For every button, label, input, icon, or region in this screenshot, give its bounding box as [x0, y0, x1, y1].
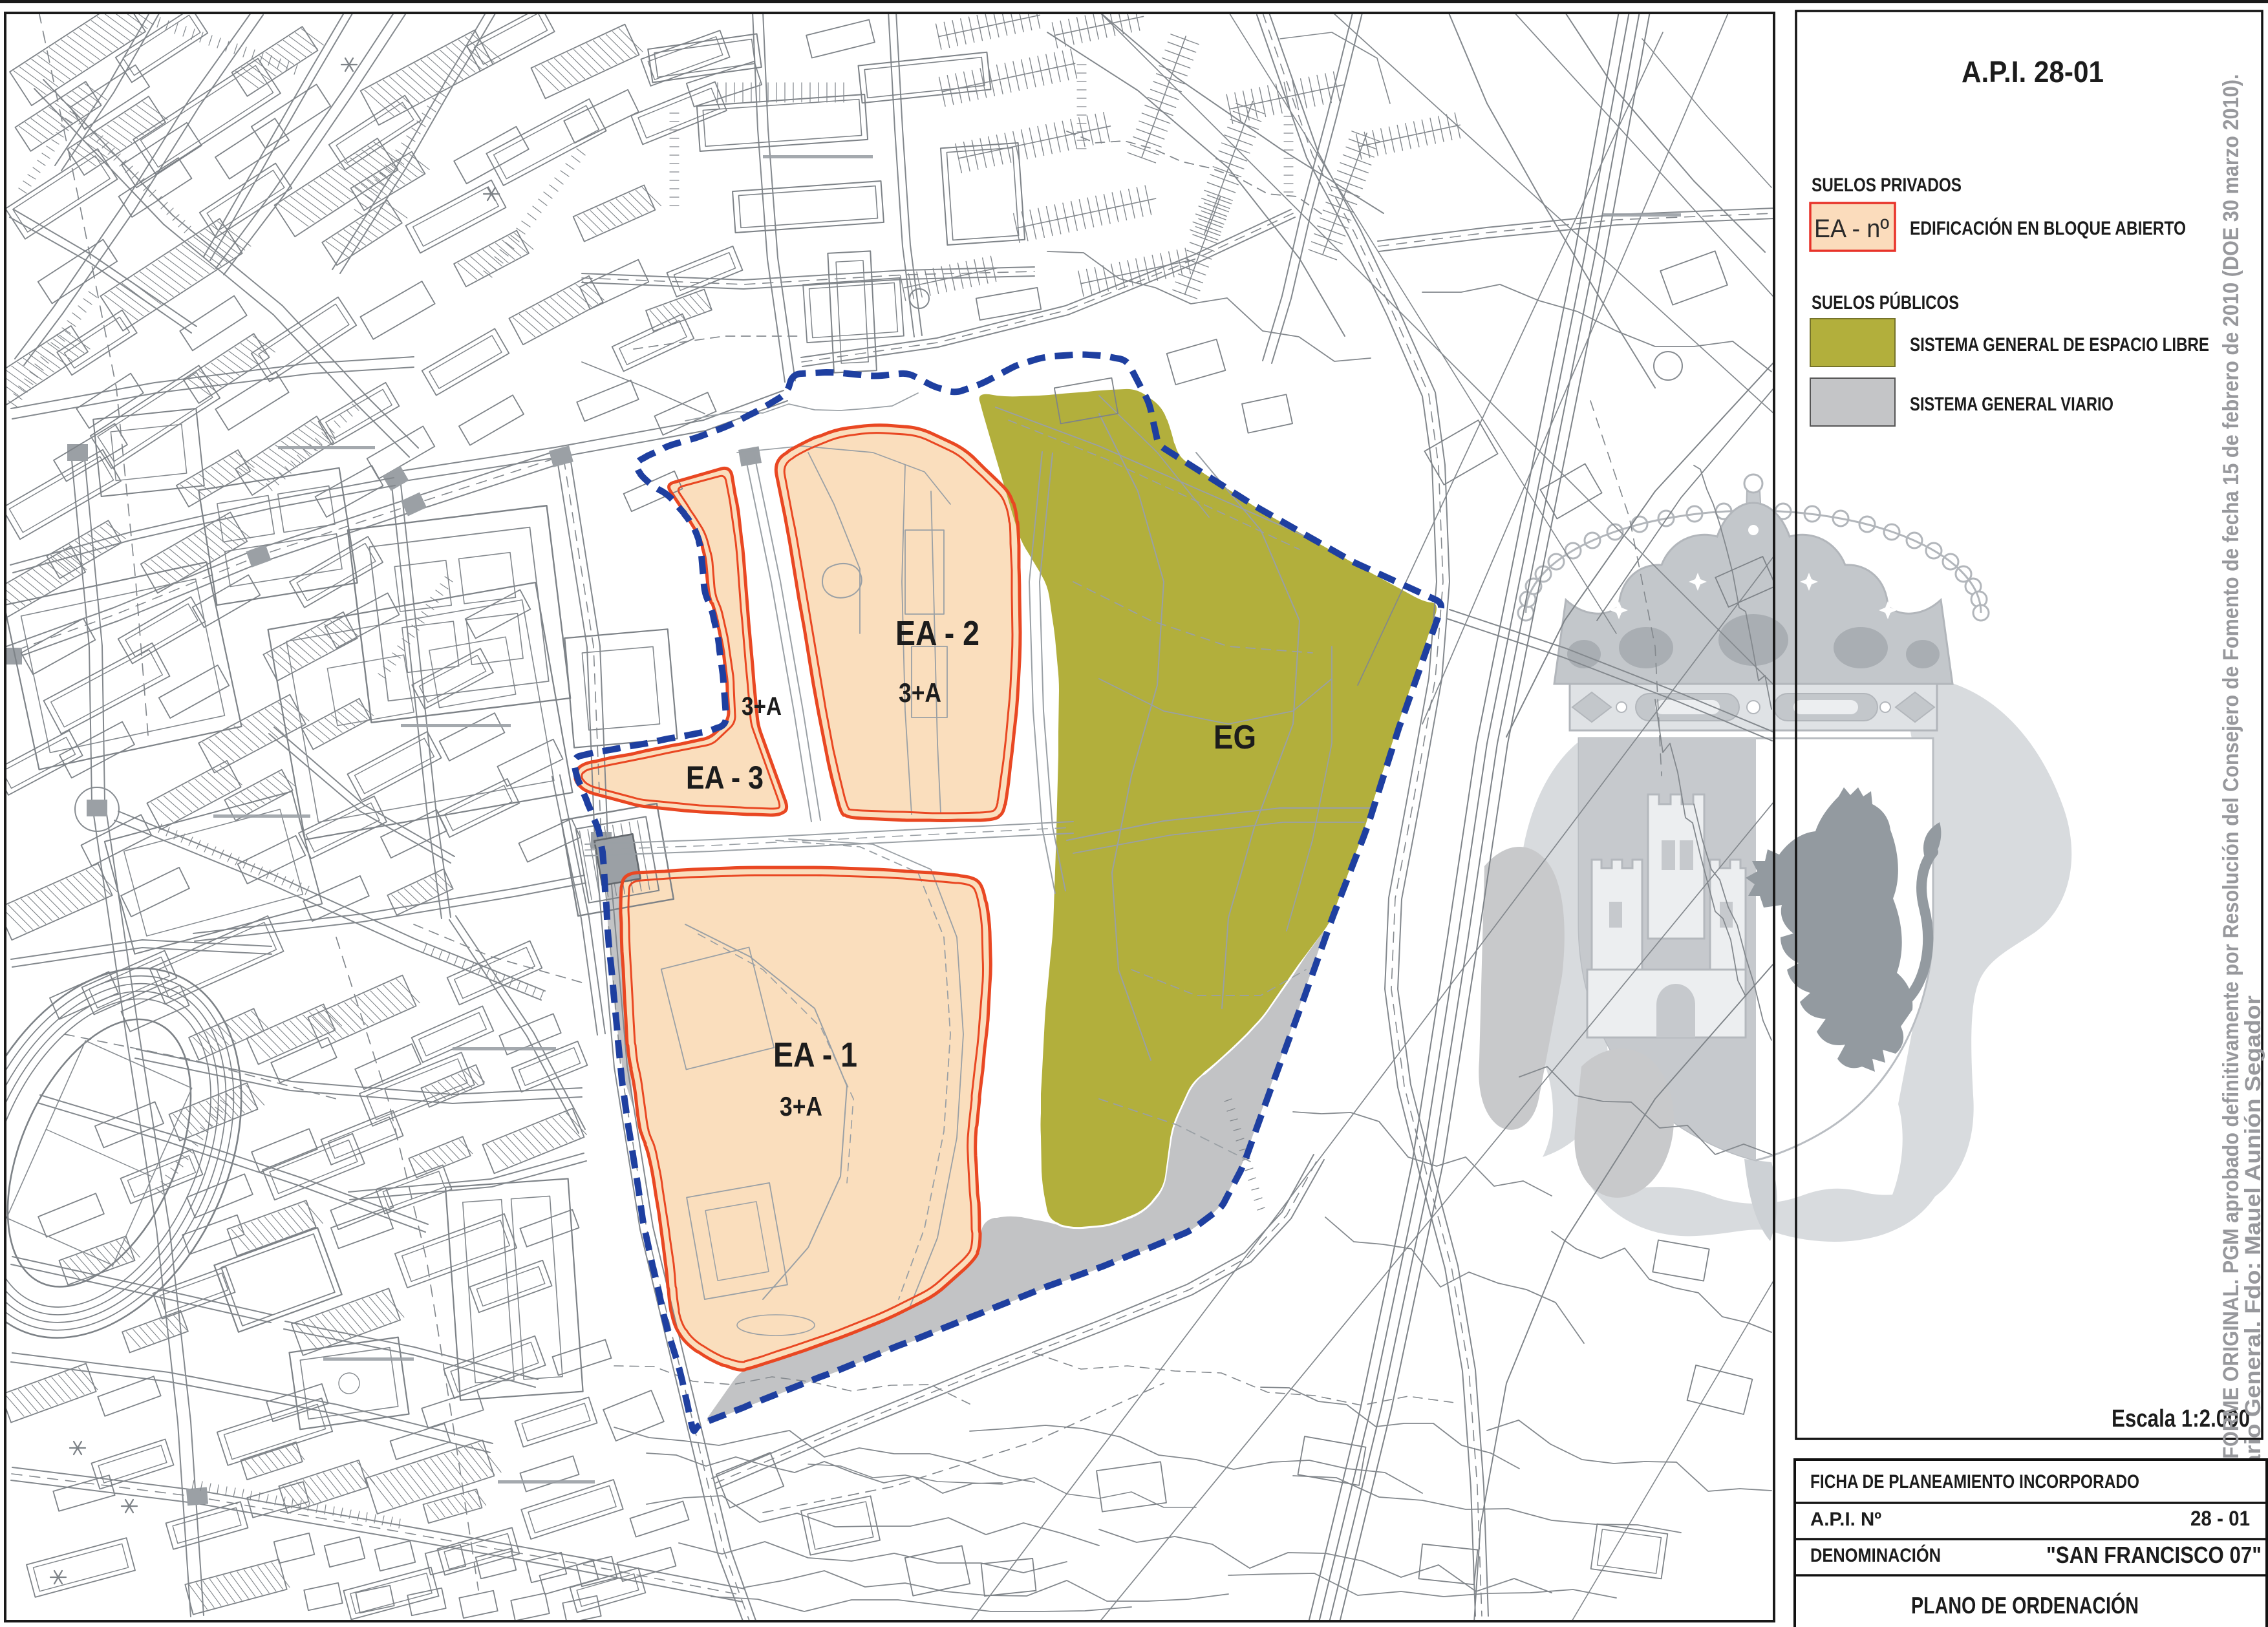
svg-text:EDIFICACIÓN EN BLOQUE ABIERTO: EDIFICACIÓN EN BLOQUE ABIERTO — [1910, 217, 2186, 239]
svg-text:3+A: 3+A — [899, 677, 941, 708]
svg-text:SUELOS PÚBLICOS: SUELOS PÚBLICOS — [1812, 292, 1959, 314]
svg-text:28 - 01: 28 - 01 — [2190, 1507, 2250, 1530]
svg-text:A.P.I. 28-01: A.P.I. 28-01 — [1962, 55, 2104, 89]
svg-text:SISTEMA GENERAL VIARIO: SISTEMA GENERAL VIARIO — [1910, 394, 2113, 415]
svg-text:DENOMINACIÓN: DENOMINACIÓN — [1810, 1544, 1941, 1566]
svg-text:FICHA DE PLANEAMIENTO INCORPOR: FICHA DE PLANEAMIENTO INCORPORADO — [1810, 1471, 2139, 1493]
svg-text:EA - 1: EA - 1 — [773, 1036, 857, 1074]
svg-text:"SAN FRANCISCO 07": "SAN FRANCISCO 07" — [2046, 1542, 2262, 1568]
svg-text:EA - 2: EA - 2 — [895, 614, 979, 653]
svg-text:A.P.I. Nº: A.P.I. Nº — [1810, 1509, 1881, 1530]
svg-text:EA - nº: EA - nº — [1814, 215, 1889, 243]
svg-text:COPIA CONFORME ORIGINAL. PGM a: COPIA CONFORME ORIGINAL. PGM aprobado de… — [2219, 74, 2243, 1571]
svg-text:EA - 3: EA - 3 — [686, 760, 764, 796]
svg-text:EG: EG — [1214, 719, 1256, 756]
svg-text:SISTEMA GENERAL DE ESPACIO LIB: SISTEMA GENERAL DE ESPACIO LIBRE — [1910, 334, 2209, 356]
svg-text:3+A: 3+A — [742, 692, 782, 721]
svg-text:PLANO DE ORDENACIÓN: PLANO DE ORDENACIÓN — [1911, 1591, 2139, 1619]
svg-text:3+A: 3+A — [780, 1091, 822, 1122]
svg-text:SUELOS PRIVADOS: SUELOS PRIVADOS — [1812, 175, 1962, 196]
